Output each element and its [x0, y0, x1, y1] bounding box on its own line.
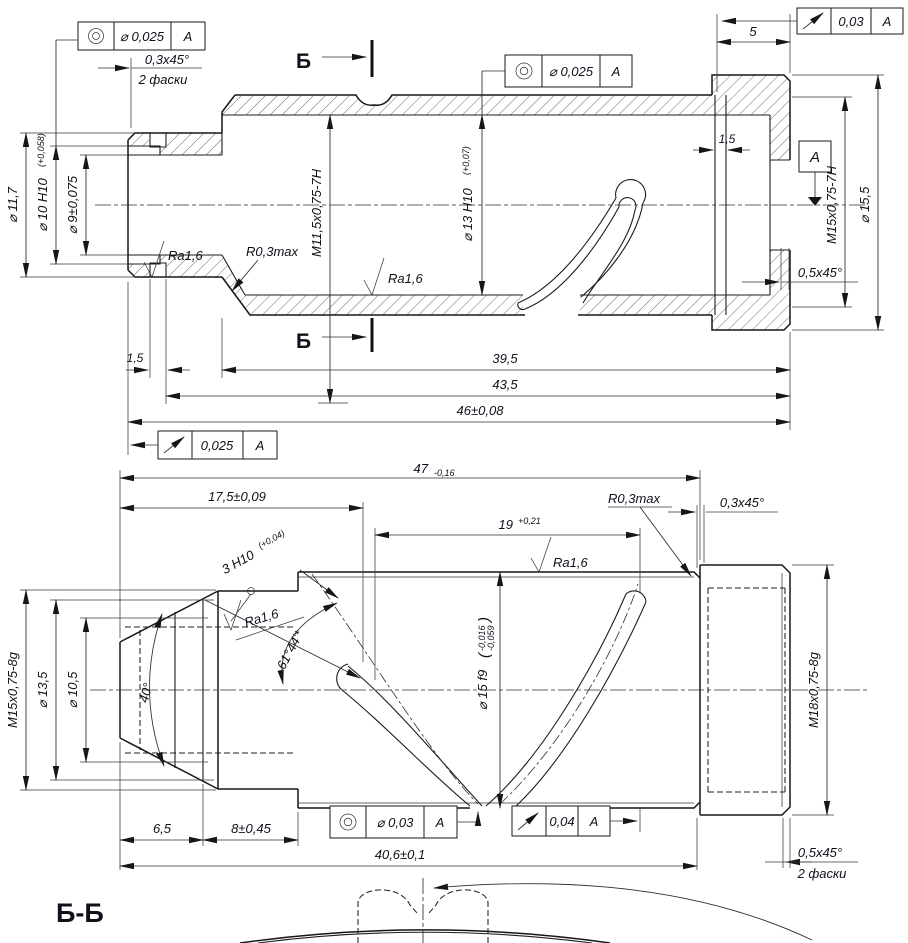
- dim-groove-15: 1,5: [719, 132, 736, 146]
- dim-61-44: 61°44'*: [274, 627, 307, 672]
- dim-5: 5: [749, 24, 757, 39]
- dim-f9-lo: -0,059: [486, 625, 496, 651]
- dim-47-tol: -0,16: [434, 468, 455, 478]
- ra-label-1: Ra1,6: [168, 248, 203, 263]
- frame-tl-datum: A: [183, 29, 193, 44]
- dim-19-tol: +0,21: [518, 516, 541, 526]
- dim-435: 43,5: [492, 377, 518, 392]
- dim-dia13: ⌀ 13 H10: [460, 188, 475, 242]
- dim-dia135: ⌀ 13,5: [35, 671, 50, 709]
- dim-3h10: 3 H10: [219, 547, 257, 577]
- section-bb-label: Б-Б: [56, 898, 104, 928]
- paren-open: (: [476, 651, 493, 658]
- dim-19: 19: [499, 517, 513, 532]
- dim-47: 47: [414, 461, 429, 476]
- section-label-bottom: Б: [296, 330, 311, 353]
- dim-40deg: 40°: [136, 681, 156, 704]
- section-mark-bottom: Б: [296, 318, 372, 353]
- radius-note-bottom: R0,3max: [608, 491, 691, 576]
- dim-65: 6,5: [153, 821, 172, 836]
- bottom-view-dimensions: 47 -0,16 17,5±0,09 19 +0,21 R0,3max 0,3x…: [5, 461, 858, 881]
- frame-tr-value: 0,03: [838, 14, 864, 29]
- dim-dia117: ⌀ 11,7: [5, 186, 20, 223]
- frame-tr-datum: A: [882, 14, 892, 29]
- frame-br-value: 0,04: [549, 814, 574, 829]
- r03max-label-top: R0,3max: [246, 244, 299, 259]
- section-bb-view: Б-Б: [56, 878, 812, 943]
- drawing-canvas: ⌀ 11,7 ⌀ 10 H10 (+0,058) ⌀ 9±0,075 ⌀ 0,0…: [0, 0, 908, 943]
- dim-3h10-tol: (+0,04): [256, 528, 286, 551]
- datum-a-label: A: [809, 149, 820, 166]
- dim-dia15f9: ⌀ 15 f9: [475, 670, 490, 710]
- chamfer-03-note: 2 фаски: [138, 72, 188, 87]
- dim-dia105: ⌀ 10,5: [65, 671, 80, 709]
- dim-175: 17,5±0,09: [208, 489, 266, 504]
- tolerance-frame-runout-br: 0,04 A: [512, 806, 640, 836]
- top-view: [95, 75, 865, 330]
- dim-395: 39,5: [492, 351, 518, 366]
- chamfer-note-right: 0,5x45°: [742, 248, 858, 290]
- ra-label-3: Ra1,6: [553, 555, 588, 570]
- engineering-drawing: ⌀ 11,7 ⌀ 10 H10 (+0,058) ⌀ 9±0,075 ⌀ 0,0…: [0, 0, 908, 943]
- helix-angle-dim: 61°44'*: [274, 603, 337, 684]
- chamfer-03-label: 0,3x45°: [145, 52, 189, 67]
- chamfer-05b-label: 0,5x45°: [798, 845, 842, 860]
- dim-dia9: ⌀ 9±0,075: [65, 175, 80, 234]
- dim-15-bottom: 1,5: [127, 351, 144, 365]
- frame-bc-datum: A: [435, 815, 445, 830]
- roughness-mark-2: Ra1,6: [364, 258, 423, 295]
- dim-m18: M18x0,75-8g: [806, 651, 821, 728]
- dim-46: 46±0,08: [457, 403, 505, 418]
- radius-note-top: R0,3max: [232, 244, 299, 291]
- dim-dia13-tol: (+0,07): [461, 146, 471, 175]
- frame-tm-value: ⌀ 0,025: [549, 64, 594, 79]
- dim-8: 8±0,45: [231, 821, 271, 836]
- chamfer-05-label: 0,5x45°: [798, 265, 842, 280]
- ra-label-4: Ra1,6: [243, 606, 281, 630]
- paren-close: ): [476, 617, 493, 624]
- tolerance-frame-runout-bl: 0,025 A: [131, 431, 277, 459]
- ra-label-2: Ra1,6: [388, 271, 423, 286]
- chamfer-note-top-left: 0,3x45° 2 фаски: [98, 52, 202, 128]
- dim-dia155: ⌀ 15,5: [857, 186, 872, 224]
- chamfer-05b-note: 2 фаски: [797, 866, 847, 881]
- dim-m115: M11,5x0,75-7H: [309, 168, 324, 257]
- frame-br-datum: A: [589, 814, 599, 829]
- top-view-hatching: [128, 75, 790, 330]
- tolerance-frame-concentricity-tm: ⌀ 0,025 A: [482, 55, 632, 87]
- frame-tl-value: ⌀ 0,025: [120, 29, 165, 44]
- roughness-mark-3: Ra1,6: [531, 537, 588, 572]
- chamfer-note-bottom-top: 0,3x45°: [668, 495, 778, 568]
- dim-406: 40,6±0,1: [375, 847, 426, 862]
- section-mark-top: Б: [296, 40, 372, 77]
- frame-tm-datum: A: [611, 64, 621, 79]
- frame-bl-value: 0,025: [201, 438, 234, 453]
- dim-m15-7h: M15x0,75-7H: [824, 165, 839, 244]
- section-label-top: Б: [296, 50, 311, 73]
- tolerance-frame-concentricity-bc: ⌀ 0,03 A: [330, 806, 478, 838]
- tolerance-frame-concentricity-tl: ⌀ 0,025 A: [56, 22, 205, 50]
- chamfer-note-bottom-right: 0,5x45° 2 фаски: [765, 818, 858, 881]
- dim-m15-8g: M15x0,75-8g: [5, 651, 20, 728]
- hook-slot: [518, 180, 646, 310]
- frame-bl-datum: A: [255, 438, 265, 453]
- chamfer-03b-label: 0,3x45°: [720, 495, 764, 510]
- dim-dia10-tol: (+0,058): [36, 133, 46, 167]
- dim-dia10: ⌀ 10 H10: [35, 178, 50, 232]
- frame-bc-value: ⌀ 0,03: [377, 815, 415, 830]
- r03max-label-bottom: R0,3max: [608, 491, 661, 506]
